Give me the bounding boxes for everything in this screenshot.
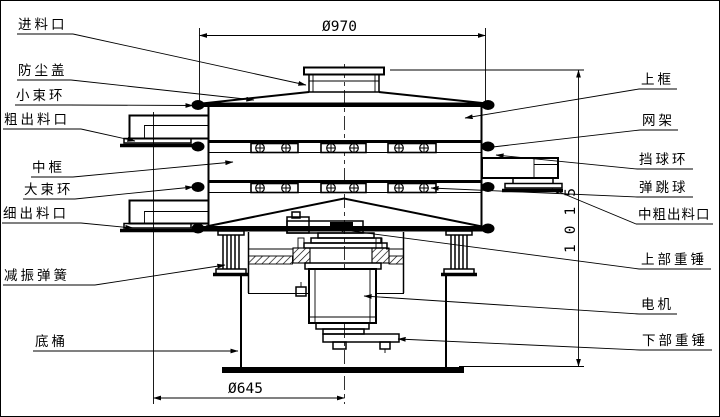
label-text: 挡球环 [639,152,689,167]
label-upper-frame: 上框 [465,72,677,118]
bouncing-ball-icon [395,184,404,193]
leader-line [95,265,225,285]
label-text: 电机 [641,297,674,312]
bearing-block-hatched [372,248,389,263]
label-text: 中框 [32,160,65,175]
label-text: 上部重锤 [641,252,707,267]
label-large-clamp-ring: 大束环 [23,182,193,199]
bouncing-ball-icon [282,184,291,193]
spring-top-plate [218,231,244,235]
leader-line [364,296,639,314]
leader-line [496,155,637,169]
leader-line [75,187,193,199]
bottom-cone-shape [192,199,495,234]
duct-inner-step [145,126,209,139]
frame-walls [209,107,482,226]
upper-weight-shape [287,212,389,263]
bearing-block-hatched [293,248,310,263]
bouncing-ball-icon [256,184,265,193]
label-text: 底桶 [35,334,68,349]
bouncing-ball-icon [282,144,291,153]
label-ball-stop-ring: 挡球环 [496,152,693,169]
label-text: 小束环 [16,88,66,103]
leader-line [71,80,254,100]
bouncing-ball-icon [327,184,336,193]
spring-top-plate [446,231,472,235]
label-text: 防尘盖 [18,63,68,78]
duct-outline [130,201,209,224]
lower-weight-block [333,342,346,349]
dimensions: Ø970 1015 Ø645 [154,19,585,398]
bouncing-ball-icon [256,144,265,153]
bearing-bolt-pin [298,238,304,248]
inlet-cap [304,68,384,75]
bouncing-ball-icon [327,144,336,153]
screen-deck-2 [192,180,495,193]
drum-base-plate [222,367,464,373]
leader-line [69,105,193,106]
label-text: 弹跳球 [639,180,689,195]
motor-shape [296,263,381,323]
damping-spring-left [213,231,249,275]
machine-drawing [120,68,563,374]
vibrating-sieve-diagram: Ø970 1015 Ø645 进料口 防尘盖 小束环 [1,1,719,416]
duct-inner-step [145,212,209,224]
damping-spring-right [441,231,477,275]
mount-strip-hatched [389,256,404,264]
label-middle-frame: 中框 [31,160,233,177]
weight-step-plate [304,243,387,248]
label-screen-frame: 网架 [484,113,678,148]
duct-flange [505,184,562,189]
clamp-bolt [192,182,205,192]
cone-edge-left [202,92,309,104]
label-fine-outlet: 细出料口 [2,206,133,228]
duct-outline [130,116,209,139]
lower-weight-plate [323,334,399,342]
clamp-bolt [192,100,205,110]
inlet-neck [309,75,379,93]
label-base-drum: 底桶 [33,334,238,351]
leader-line [484,130,640,148]
bouncing-ball-icon [350,184,359,193]
clamp-bolt [482,100,495,110]
feed-inlet-shape [304,68,384,93]
dimension-text: 1015 [563,178,579,253]
label-text: 进料口 [18,17,68,32]
clamp-bolt [482,224,495,234]
label-damping-spring: 减振弹簧 [3,265,225,285]
label-text: 减振弹簧 [4,268,70,283]
technical-drawing: Ø970 1015 Ø645 进料口 防尘盖 小束环 [0,0,720,417]
rim-band [196,103,490,108]
motor-terminal-box [296,287,306,296]
label-motor: 电机 [364,296,677,314]
label-text: 网架 [642,113,675,128]
small-clamp-ring-shape [192,100,495,110]
dimension-text: Ø970 [322,19,357,35]
mount-strip-hatched [249,256,293,264]
dimension-text: Ø645 [228,381,263,397]
bouncing-ball-icon [350,144,359,153]
label-text: 粗出料口 [4,112,70,127]
bouncing-ball-icon [395,144,404,153]
label-text: 下部重锤 [642,333,708,348]
lower-weight-shape [316,323,399,353]
dimension-bottom-diameter: Ø645 [154,381,345,398]
leader-line [73,34,306,85]
leader-line [398,339,640,350]
label-text: 上框 [641,72,674,87]
dimension-top-diameter: Ø970 [200,19,486,102]
lower-weight-bolt [380,342,390,349]
bouncing-ball-icon [420,144,429,153]
leader-line [81,129,135,141]
weight-arm-counter [330,222,353,227]
clamp-bolt [482,142,495,152]
deck-bar [208,180,482,183]
label-coarse-outlet: 粗出料口 [3,112,135,141]
cone-edge-right [379,92,487,104]
deck-bar [208,140,482,143]
screen-deck-1 [192,140,495,153]
duct-outline [482,158,558,178]
duct-flange [124,224,191,229]
bouncing-ball-icon [420,184,429,193]
label-text: 大束环 [24,182,74,197]
label-text: 中粗出料口 [638,207,711,222]
label-text: 细出料口 [3,206,69,221]
